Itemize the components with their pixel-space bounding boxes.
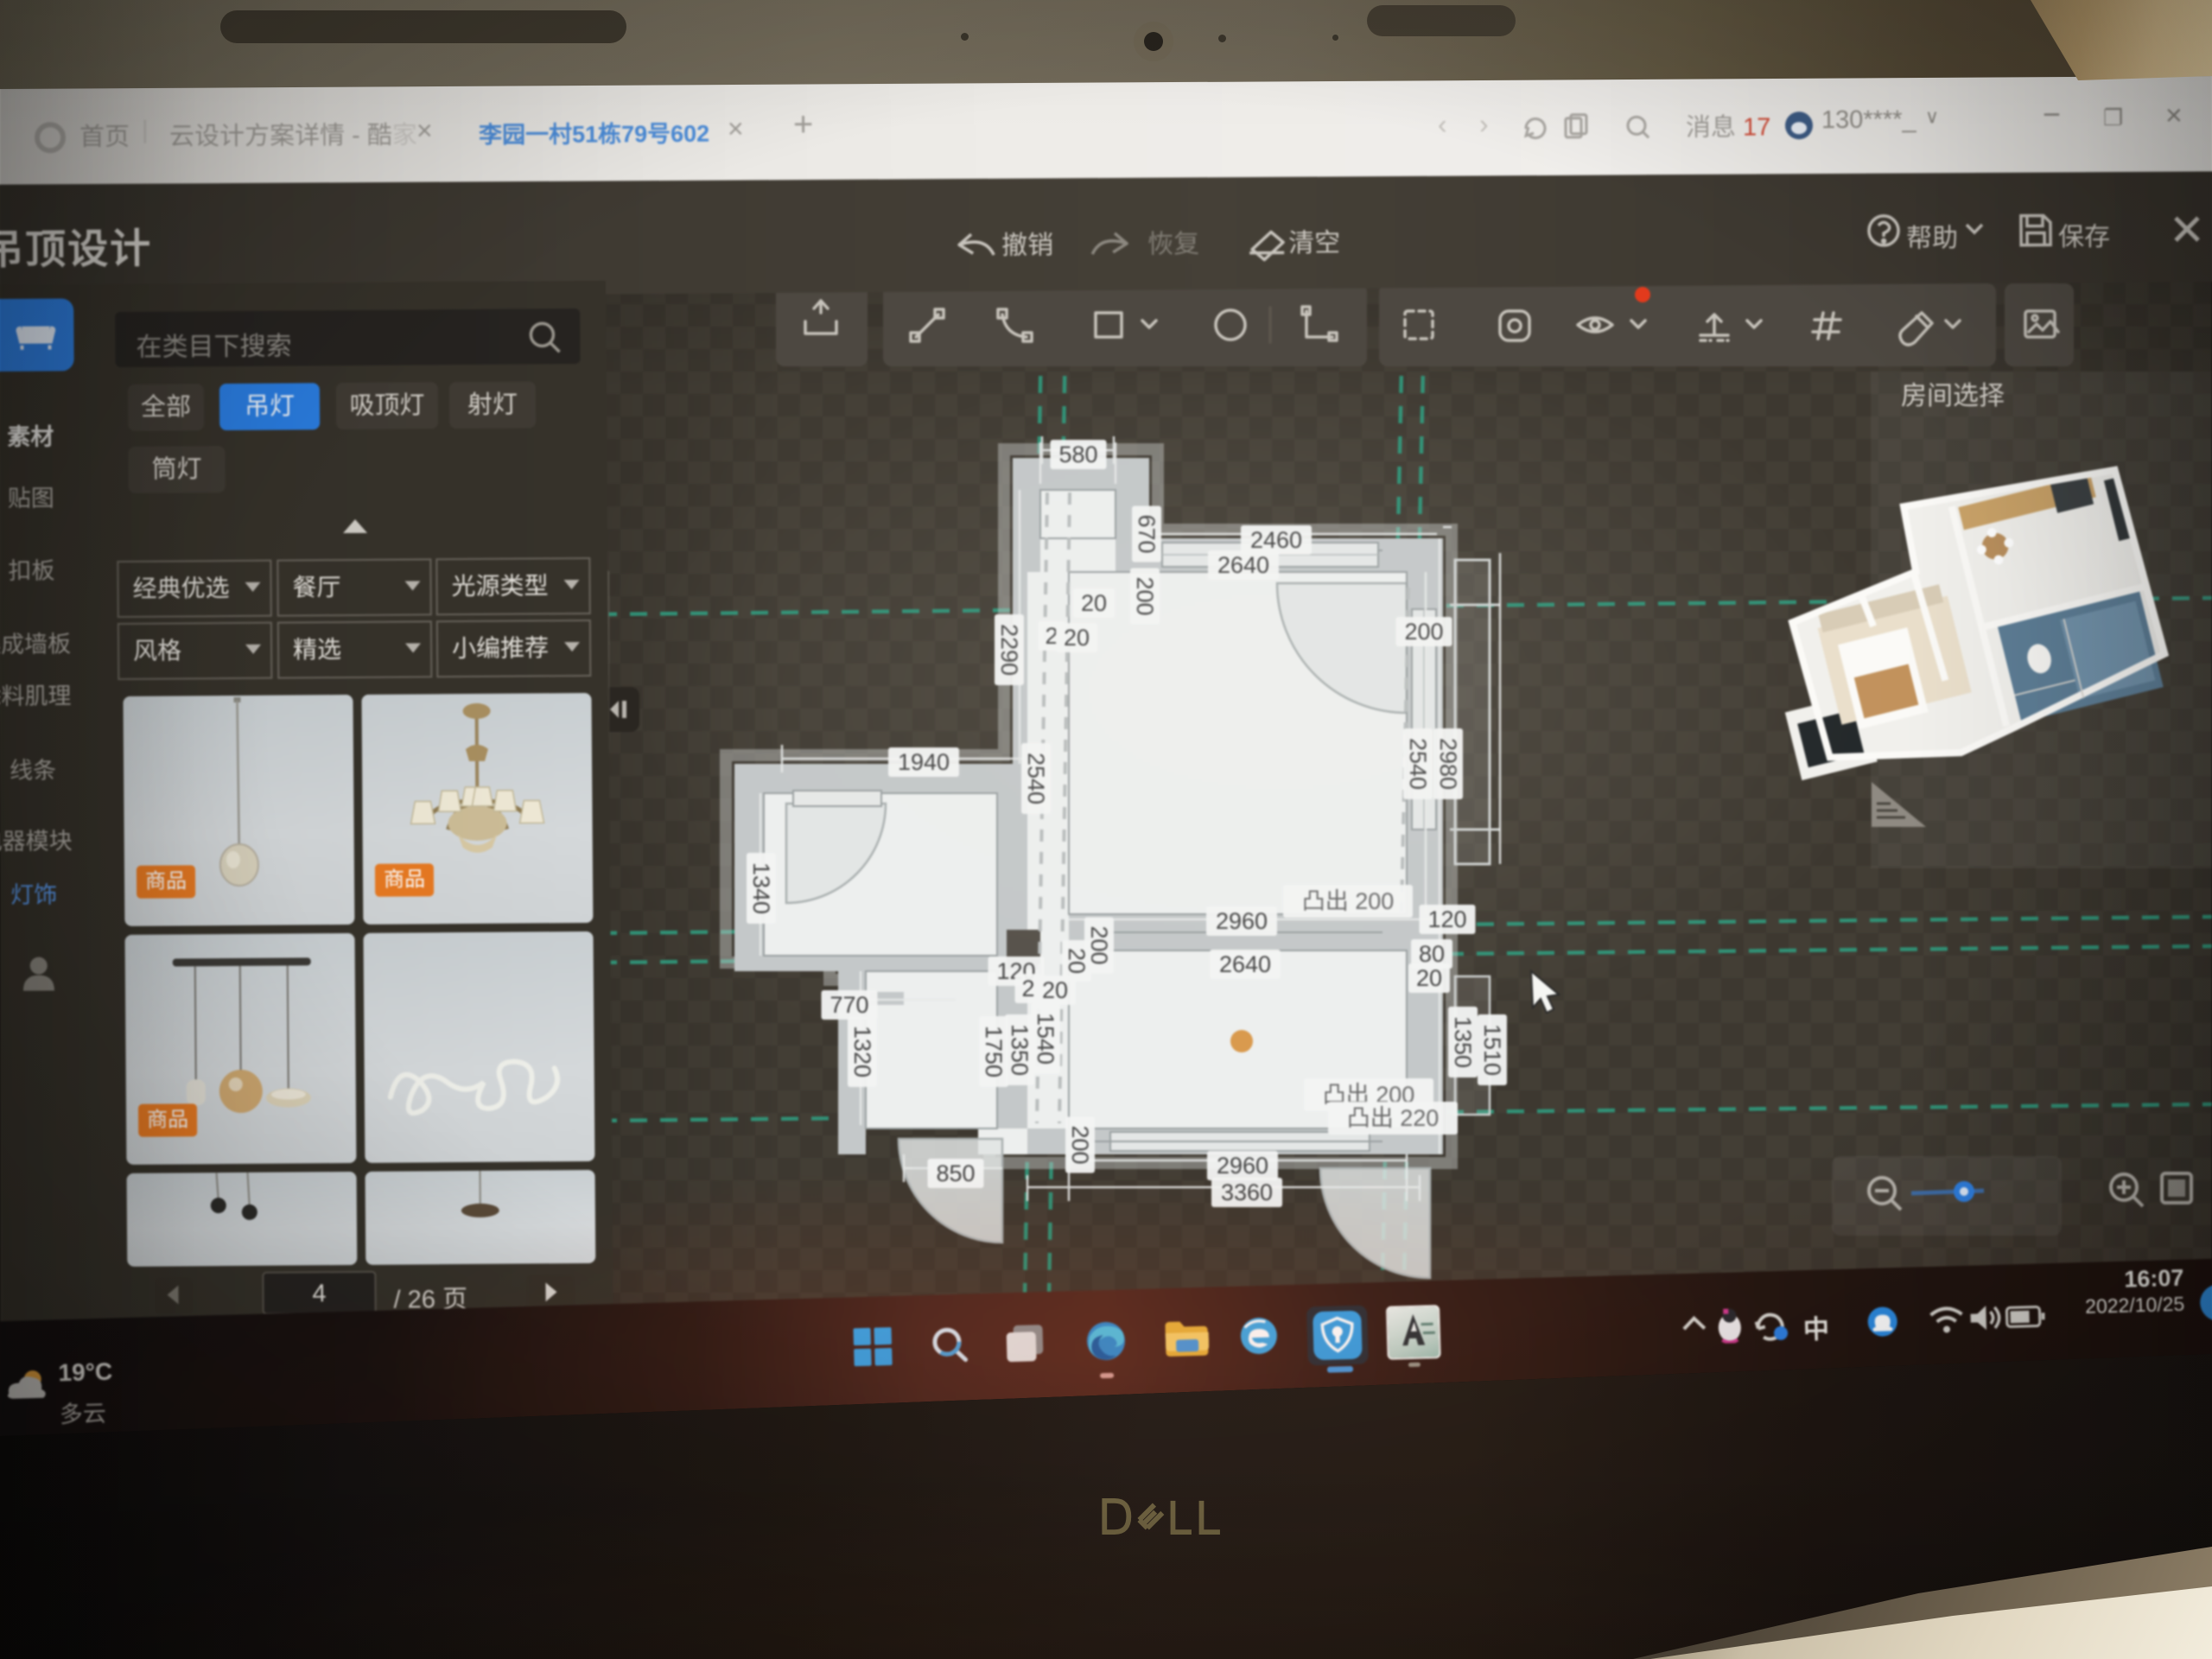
svg-text:770: 770 (829, 992, 868, 1018)
svg-text:1940: 1940 (898, 749, 950, 775)
svg-text:200: 200 (1404, 619, 1443, 645)
svg-text:2540: 2540 (1023, 753, 1049, 804)
svg-text:2960: 2960 (1216, 908, 1268, 934)
svg-text:3360: 3360 (1221, 1179, 1273, 1205)
svg-text:1350: 1350 (1007, 1024, 1033, 1076)
svg-text:670: 670 (1134, 514, 1160, 553)
svg-text:1540: 1540 (1033, 1013, 1058, 1065)
svg-text:20: 20 (1081, 590, 1107, 616)
svg-text:凸出 200: 凸出 200 (1302, 888, 1395, 914)
svg-text:120: 120 (1427, 906, 1466, 932)
svg-text:2540: 2540 (1405, 738, 1431, 790)
svg-text:2640: 2640 (1219, 951, 1271, 977)
svg-text:2960: 2960 (1217, 1153, 1268, 1179)
svg-text:1750: 1750 (981, 1026, 1007, 1077)
svg-text:200: 200 (1067, 1125, 1093, 1164)
svg-text:1320: 1320 (849, 1026, 875, 1077)
svg-text:2980: 2980 (1435, 738, 1461, 790)
svg-text:2640: 2640 (1217, 552, 1269, 578)
svg-text:1510: 1510 (1479, 1024, 1505, 1076)
svg-text:1350: 1350 (1450, 1016, 1476, 1068)
svg-text:80: 80 (1419, 941, 1445, 967)
svg-text:1340: 1340 (748, 862, 774, 914)
svg-text:2: 2 (1021, 976, 1034, 1001)
svg-text:20: 20 (1064, 625, 1090, 651)
svg-text:850: 850 (936, 1160, 975, 1186)
svg-text:2290: 2290 (996, 624, 1022, 676)
svg-text:580: 580 (1058, 442, 1097, 467)
svg-text:20: 20 (1416, 965, 1442, 991)
svg-text:20: 20 (1042, 977, 1068, 1003)
svg-text:20: 20 (1064, 948, 1090, 974)
svg-text:200: 200 (1132, 576, 1158, 615)
svg-text:2460: 2460 (1250, 527, 1302, 553)
svg-text:凸出 220: 凸出 220 (1347, 1105, 1440, 1131)
